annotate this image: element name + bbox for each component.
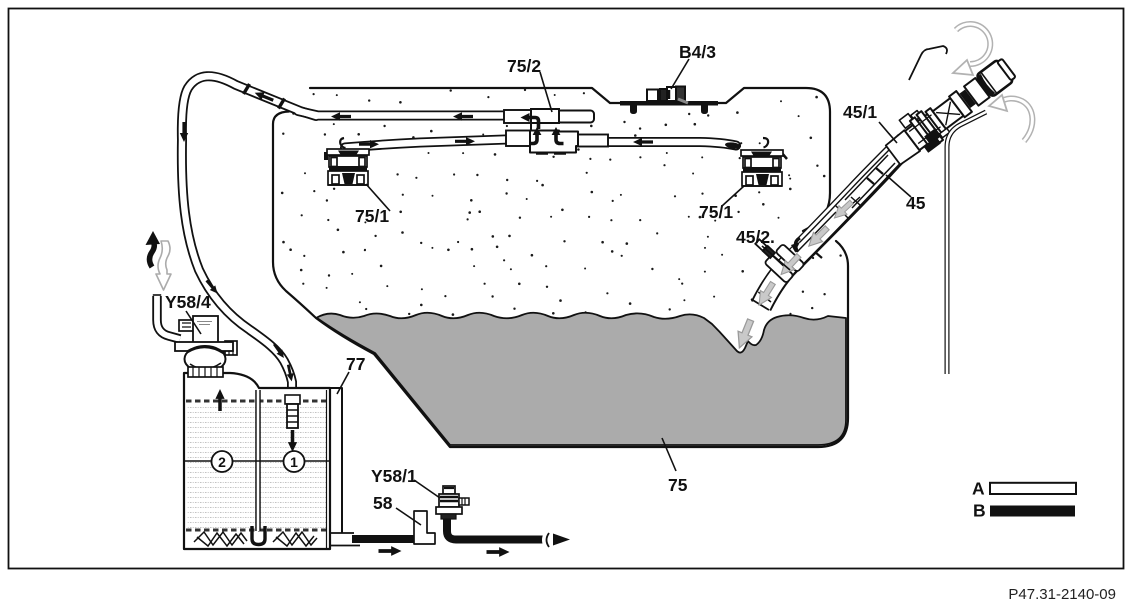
svg-text:75/2: 75/2 [507, 56, 541, 76]
svg-text:Y58/1: Y58/1 [371, 466, 417, 486]
svg-text:Y58/4: Y58/4 [165, 292, 211, 312]
svg-text:1: 1 [290, 454, 298, 470]
svg-text:45/2.: 45/2. [736, 227, 775, 247]
svg-text:75: 75 [668, 475, 688, 495]
svg-text:45/1: 45/1 [843, 102, 877, 122]
svg-text:75/1: 75/1 [699, 202, 733, 222]
svg-text:75/1: 75/1 [355, 206, 389, 226]
svg-text:B4/3: B4/3 [679, 42, 716, 62]
svg-text:58: 58 [373, 493, 393, 513]
svg-text:2: 2 [218, 454, 226, 470]
svg-text:P47.31-2140-09: P47.31-2140-09 [1008, 586, 1116, 603]
svg-text:45: 45 [906, 193, 926, 213]
svg-text:A: A [972, 479, 985, 499]
svg-text:77: 77 [346, 354, 365, 374]
svg-text:B: B [973, 501, 986, 521]
